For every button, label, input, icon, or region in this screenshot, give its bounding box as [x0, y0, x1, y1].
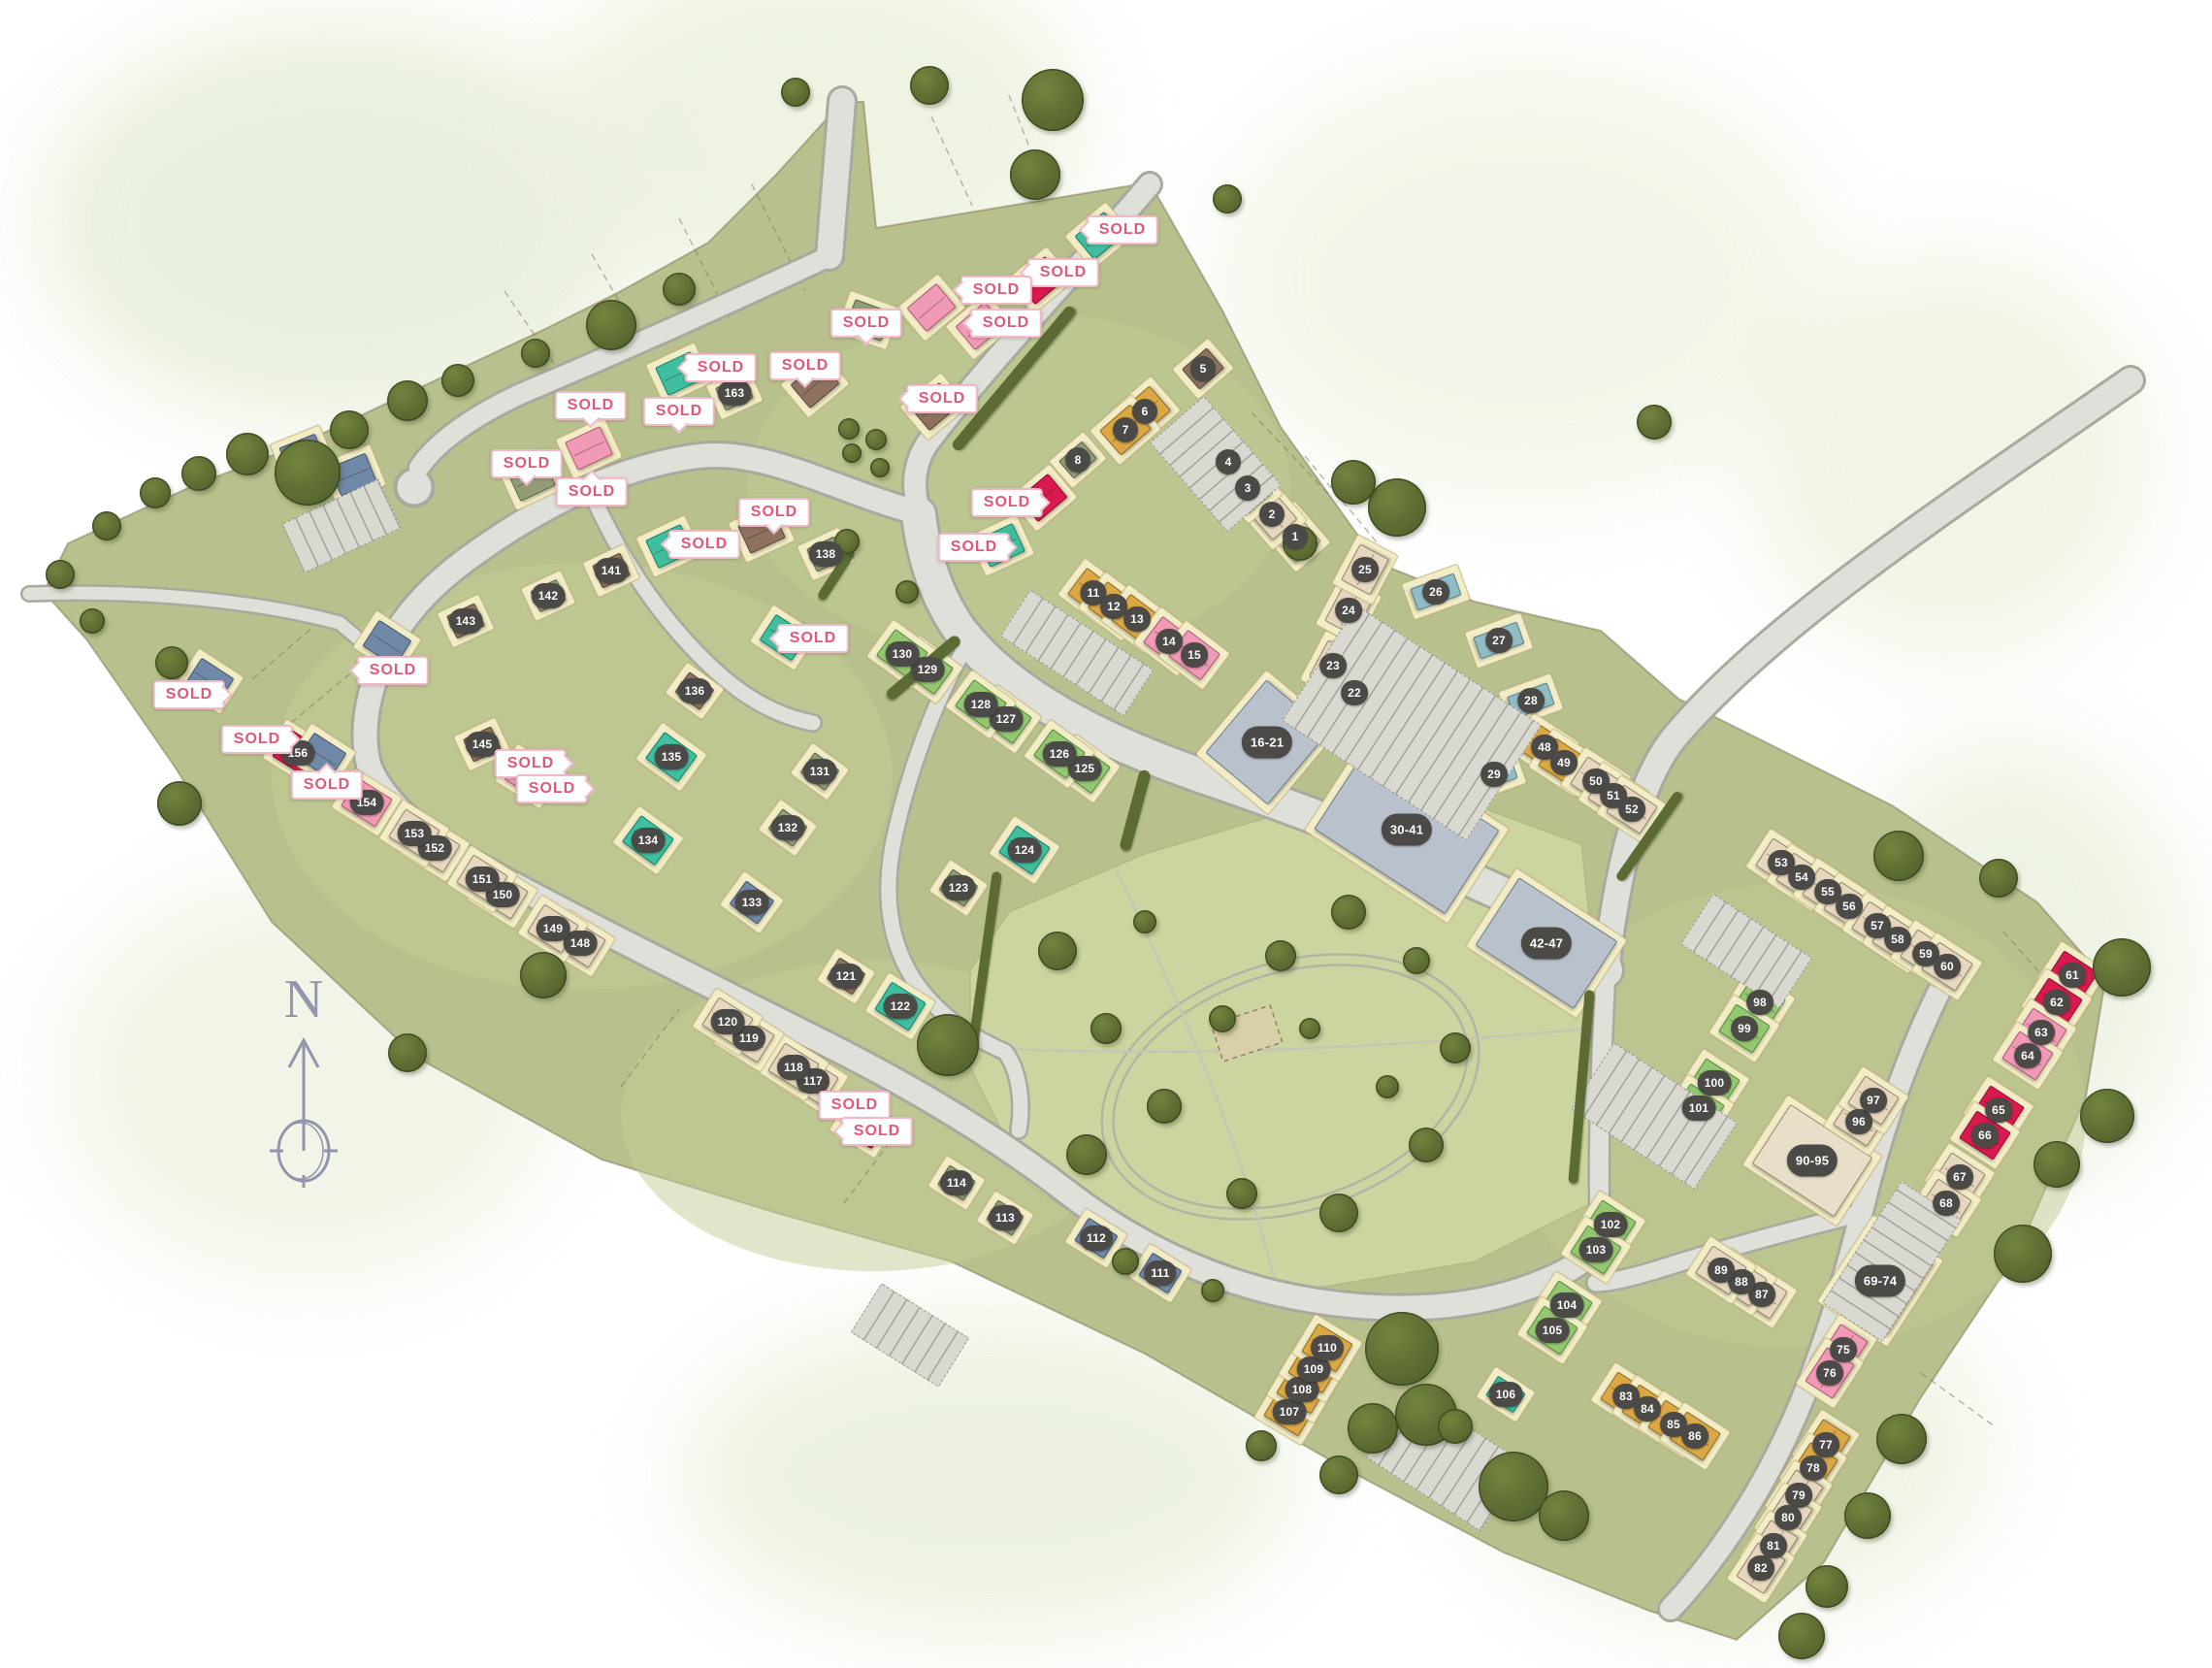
plot-number-badge: 134: [632, 828, 666, 853]
plot-number-badge: 5: [1190, 356, 1216, 381]
plot-number-badge: 13: [1123, 606, 1151, 632]
plot-number-badge: 143: [449, 608, 483, 634]
tree-icon: [1038, 932, 1077, 970]
plot-number-badge: 113: [989, 1205, 1022, 1230]
sold-badge: SOLD: [960, 276, 1032, 305]
tree-icon: [1147, 1089, 1182, 1124]
tree-icon: [157, 781, 202, 826]
tree-icon: [865, 429, 887, 450]
tree-icon: [520, 952, 567, 998]
sold-badge: SOLD: [971, 488, 1043, 517]
house-footprint: [565, 426, 613, 471]
sold-badge: SOLD: [819, 1091, 891, 1120]
plot-number-badge: 122: [884, 994, 918, 1019]
sold-badge: SOLD: [1087, 215, 1158, 245]
tree-icon: [838, 418, 860, 440]
plot-number-badge: 7: [1113, 417, 1138, 442]
sold-badge: SOLD: [777, 624, 849, 653]
tree-icon: [275, 440, 341, 506]
sold-badge: SOLD: [668, 530, 740, 559]
tree-icon: [1778, 1613, 1825, 1659]
plot-number-badge: 141: [595, 558, 629, 583]
plot-number-badge: 4: [1216, 449, 1241, 474]
plot-number-badge: 136: [678, 678, 712, 703]
plot-number-badge: 120: [711, 1009, 745, 1034]
tree-icon: [226, 433, 269, 475]
sold-badge: SOLD: [685, 353, 757, 382]
plot-number-badge: 130: [886, 641, 920, 667]
plot-number-badge: 110: [1311, 1335, 1344, 1360]
tree-icon: [663, 273, 696, 306]
plot-number-badge: 2: [1259, 502, 1285, 527]
plot-number-badge: 101: [1682, 1096, 1716, 1121]
plot-number-badge: 86: [1681, 1423, 1708, 1449]
plot-number-badge: 78: [1800, 1455, 1827, 1481]
tree-icon: [2080, 1089, 2134, 1143]
tree-icon: [521, 339, 550, 368]
siteplan-canvas: 12345678111213141516-2122232425262728293…: [0, 0, 2212, 1668]
sold-badge: SOLD: [556, 477, 628, 507]
tree-icon: [388, 1033, 427, 1072]
plot-number-badge: 75: [1830, 1337, 1857, 1362]
sold-badge: SOLD: [491, 449, 563, 478]
tree-icon: [1637, 405, 1672, 440]
plot-number-badge: 123: [942, 875, 976, 900]
tree-icon: [80, 608, 105, 634]
plot-number-badge: 16-21: [1242, 727, 1292, 759]
plot-number-badge: 142: [532, 583, 566, 608]
tree-icon: [92, 511, 121, 540]
plot-number-badge: 99: [1731, 1016, 1758, 1041]
plot-number-badge: 111: [1144, 1260, 1176, 1286]
tree-icon: [1479, 1452, 1548, 1521]
plot-number-badge: 8: [1065, 447, 1090, 473]
plot-number-badge: 84: [1634, 1396, 1661, 1422]
tree-icon: [917, 1014, 979, 1076]
tree-icon: [1331, 460, 1376, 505]
plot-number-badge: 124: [1008, 837, 1042, 863]
tree-icon: [1539, 1490, 1589, 1541]
plot-number-badge: 26: [1422, 579, 1449, 605]
tree-icon: [1319, 1455, 1358, 1494]
tree-icon: [387, 380, 428, 421]
plot-number-badge: 52: [1618, 797, 1645, 822]
tree-icon: [2033, 1141, 2080, 1188]
plot-number-badge: 133: [735, 890, 769, 915]
tree-icon: [842, 443, 862, 463]
plot-number-badge: 56: [1836, 894, 1863, 919]
sold-badge: SOLD: [153, 680, 225, 709]
tree-icon: [870, 458, 890, 477]
plot-number-badge: 106: [1489, 1382, 1523, 1407]
tree-icon: [1994, 1225, 2052, 1283]
plot-number-badge: 104: [1550, 1292, 1584, 1318]
tree-icon: [1213, 184, 1242, 213]
sold-badge: SOLD: [738, 498, 810, 527]
plot-number-badge: 131: [803, 759, 837, 784]
plot-number-badge: 22: [1341, 680, 1368, 705]
plot-number-badge: 23: [1319, 653, 1347, 678]
tree-icon: [1348, 1403, 1398, 1454]
sold-badge: SOLD: [970, 309, 1042, 338]
sold-badge: SOLD: [1027, 258, 1099, 287]
tree-icon: [1319, 1194, 1358, 1232]
plot-number-badge: 14: [1155, 629, 1183, 654]
plot-number-badge: 42-47: [1521, 928, 1572, 960]
tree-icon: [1365, 1312, 1439, 1386]
plot-number-badge: 121: [829, 964, 863, 989]
tree-icon: [1876, 1414, 1927, 1464]
plot-number-badge: 29: [1480, 762, 1508, 787]
sold-badge: SOLD: [906, 384, 978, 413]
plot-number-badge: 149: [537, 916, 570, 941]
plot-number-badge: 153: [398, 821, 432, 846]
plot-number-badge: 128: [964, 692, 998, 717]
tree-icon: [181, 456, 216, 491]
compass-north-indicator: N: [260, 972, 347, 1196]
plot-number-badge: 63: [2028, 1020, 2055, 1045]
sold-badge: SOLD: [830, 309, 902, 338]
plot-number-badge: 103: [1579, 1237, 1613, 1262]
plot-number-badge: 81: [1760, 1533, 1787, 1558]
plot-number-badge: 138: [809, 541, 843, 567]
plot-number-badge: 96: [1845, 1109, 1872, 1134]
plot-number-badge: 65: [1985, 1097, 2012, 1123]
tree-icon: [441, 364, 474, 397]
plot-number-badge: 24: [1335, 598, 1362, 623]
sold-badge: SOLD: [841, 1117, 913, 1146]
plot-number-badge: 102: [1594, 1212, 1628, 1237]
tree-icon: [1226, 1178, 1257, 1209]
plot-number-badge: 30-41: [1382, 814, 1432, 846]
tree-icon: [2093, 938, 2151, 997]
tree-icon: [1022, 69, 1084, 131]
plot-number-badge: 60: [1934, 954, 1961, 979]
tree-icon: [1979, 859, 2018, 898]
tree-icon: [1112, 1248, 1139, 1275]
plot-number-badge: 25: [1351, 557, 1379, 582]
plot-number-badge: 80: [1774, 1505, 1802, 1530]
plot-number-badge: 62: [2043, 990, 2070, 1015]
plot-number-badge: 77: [1812, 1432, 1839, 1457]
plot-number-badge: 112: [1080, 1226, 1113, 1251]
tree-icon: [1066, 1134, 1107, 1175]
plot-number-badge: 67: [1946, 1164, 1973, 1190]
compass-arrow-icon: [260, 1027, 347, 1192]
plot-number-badge: 118: [777, 1055, 810, 1080]
plot-number-badge: 68: [1933, 1191, 1960, 1216]
tree-icon: [140, 477, 171, 508]
tree-icon: [1209, 1005, 1236, 1032]
plot-number-badge: 114: [940, 1170, 973, 1195]
tree-icon: [1409, 1128, 1444, 1162]
tree-icon: [781, 78, 810, 107]
tree-icon: [1246, 1430, 1277, 1461]
plot-number-badge: 58: [1884, 927, 1911, 952]
plot-number-badge: 49: [1550, 750, 1578, 775]
sold-badge: SOLD: [555, 391, 627, 420]
tree-icon: [1090, 1013, 1122, 1044]
compass-north-label: N: [260, 972, 347, 1027]
tree-icon: [1438, 1409, 1473, 1444]
plot-number-badge: 82: [1747, 1555, 1774, 1581]
tree-icon: [1873, 831, 1924, 881]
sold-badge: SOLD: [357, 656, 429, 685]
sold-badge: SOLD: [643, 397, 715, 426]
plot-number-badge: 107: [1273, 1399, 1307, 1424]
tree-icon: [155, 646, 188, 679]
plot-number-badge: 76: [1816, 1360, 1843, 1386]
plot-number-badge: 1: [1283, 524, 1308, 549]
plot-number-badge: 132: [771, 815, 805, 840]
tree-icon: [1844, 1492, 1891, 1539]
plot-number-badge: 27: [1485, 628, 1513, 653]
tree-icon: [1368, 478, 1426, 537]
sold-badge: SOLD: [938, 533, 1010, 562]
tree-icon: [1331, 895, 1366, 930]
plot-number-badge: 90-95: [1787, 1145, 1838, 1177]
sold-badge: SOLD: [516, 774, 588, 803]
tree-icon: [895, 580, 919, 604]
plot-number-badge: 61: [2059, 963, 2086, 988]
tree-icon: [1805, 1565, 1848, 1608]
tree-icon: [1010, 149, 1060, 200]
tree-icon: [1299, 1018, 1320, 1039]
plot-number-badge: 64: [2014, 1043, 2041, 1068]
plot-number-badge: 151: [466, 867, 500, 892]
plot-number-badge: 3: [1235, 475, 1260, 501]
plot-number-badge: 15: [1181, 642, 1208, 668]
tree-icon: [330, 410, 369, 449]
tree-icon: [1376, 1075, 1399, 1098]
plot-number-badge: 6: [1132, 399, 1157, 424]
plot-number-badge: 97: [1860, 1088, 1887, 1113]
tree-icon: [1133, 910, 1156, 933]
plot-number-badge: 98: [1746, 990, 1773, 1015]
tree-icon: [1440, 1032, 1471, 1063]
sold-badge: SOLD: [769, 351, 841, 380]
plot-number-badge: 163: [718, 380, 752, 406]
plot-number-badge: 66: [1971, 1123, 1999, 1148]
tree-icon: [910, 66, 949, 105]
plot-number-badge: 28: [1517, 688, 1545, 713]
tree-icon: [1265, 940, 1296, 971]
plot-number-badge: 69-74: [1855, 1265, 1905, 1297]
plot-number-badge: 54: [1788, 865, 1815, 890]
tree-icon: [1201, 1279, 1224, 1302]
sold-badge: SOLD: [221, 725, 293, 754]
tree-icon: [1403, 947, 1430, 974]
plot-number-badge: 100: [1698, 1070, 1732, 1096]
sold-badge: SOLD: [291, 770, 363, 800]
plot-number-badge: 89: [1708, 1258, 1735, 1283]
plot-number-badge: 126: [1043, 741, 1077, 767]
tree-icon: [46, 560, 75, 589]
tree-icon: [586, 300, 636, 350]
plot-number-badge: 135: [655, 744, 689, 769]
plot-number-badge: 105: [1536, 1318, 1570, 1343]
